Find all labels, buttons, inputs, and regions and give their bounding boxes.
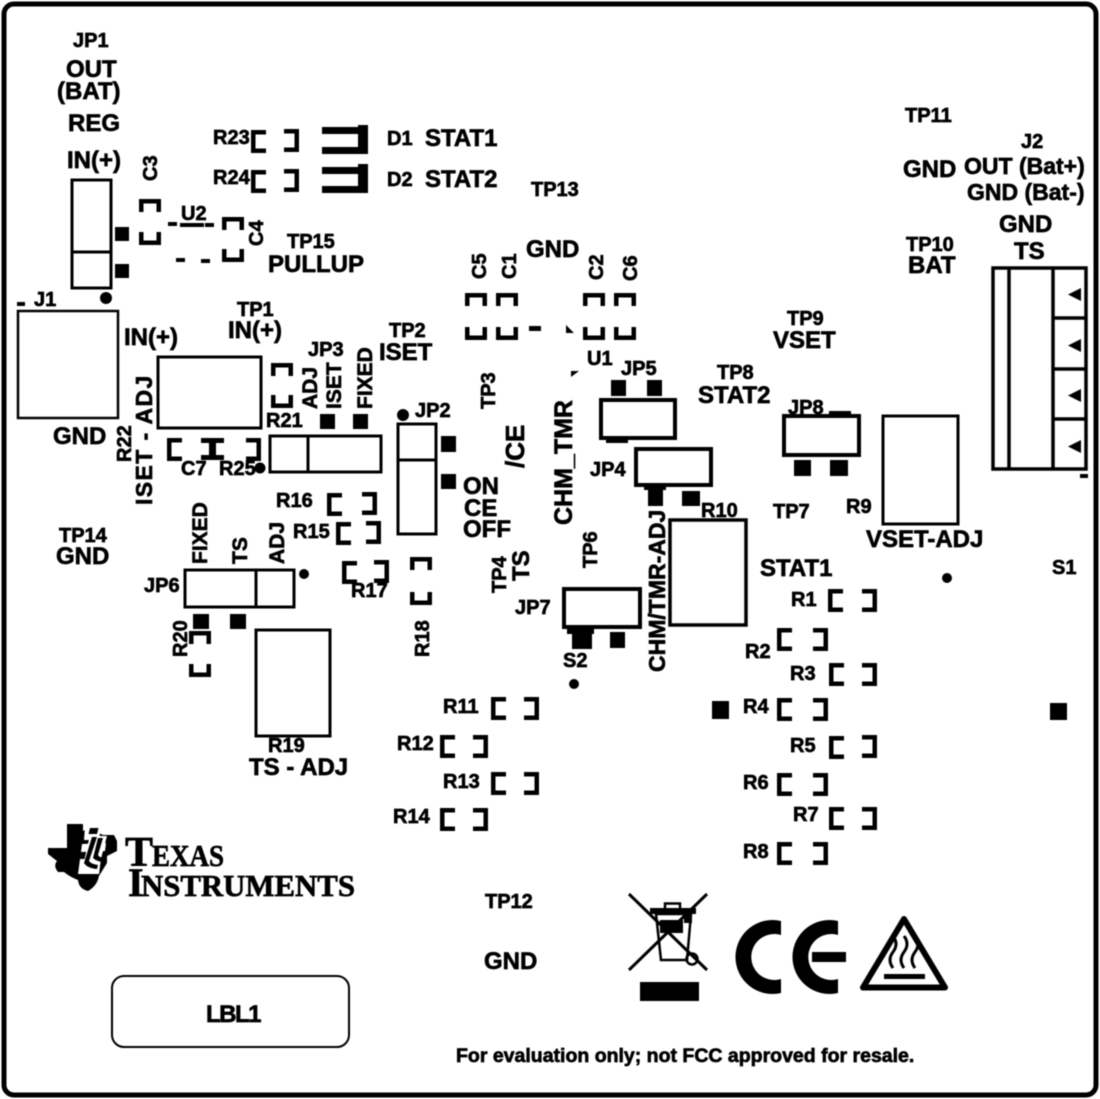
svg-text:STAT1: STAT1: [425, 125, 497, 152]
svg-text:R18: R18: [412, 620, 434, 657]
svg-text:U1: U1: [587, 348, 613, 370]
svg-text:S2: S2: [563, 650, 587, 672]
svg-text:JP4: JP4: [590, 459, 626, 481]
svg-text:C4: C4: [246, 220, 268, 246]
svg-text:ADJ: ADJ: [266, 522, 289, 564]
svg-text:GND: GND: [56, 543, 109, 570]
svg-text:C5: C5: [469, 253, 491, 279]
svg-text:JP7: JP7: [515, 597, 551, 619]
svg-text:R23: R23: [213, 127, 250, 149]
svg-text:R5: R5: [790, 735, 816, 757]
svg-text:R6: R6: [743, 772, 769, 794]
svg-text:R25: R25: [219, 458, 256, 480]
svg-text:R1: R1: [791, 589, 817, 611]
svg-text:TP11: TP11: [905, 105, 952, 127]
svg-text:U2: U2: [181, 203, 207, 225]
svg-text:PULLUP: PULLUP: [268, 251, 364, 278]
svg-text:CHM/TMR-ADJ: CHM/TMR-ADJ: [644, 510, 670, 672]
svg-text:TP13: TP13: [531, 179, 579, 201]
svg-text:C7: C7: [181, 458, 207, 480]
svg-text:OUT (Bat+): OUT (Bat+): [964, 153, 1085, 179]
svg-text:OFF: OFF: [463, 516, 511, 543]
svg-text:R9: R9: [846, 496, 872, 518]
svg-text:D1: D1: [387, 128, 413, 150]
svg-text:TP8: TP8: [717, 362, 754, 384]
svg-text:FIXED: FIXED: [354, 347, 377, 409]
svg-text:C1: C1: [499, 253, 521, 279]
svg-text:R11: R11: [443, 696, 479, 718]
svg-text:GND (Bat-): GND (Bat-): [967, 179, 1085, 205]
svg-text:STAT1: STAT1: [760, 555, 832, 582]
svg-text:CHM_TMR: CHM_TMR: [550, 400, 578, 525]
svg-text:R20: R20: [170, 620, 192, 657]
svg-text:TS - ADJ: TS - ADJ: [249, 754, 348, 781]
svg-text:/CE: /CE: [500, 425, 530, 468]
svg-text:ISET: ISET: [379, 339, 433, 366]
svg-text:TP3: TP3: [478, 372, 500, 409]
svg-text:R17: R17: [351, 580, 388, 602]
svg-text:R4: R4: [743, 696, 769, 718]
svg-text:D2: D2: [387, 169, 413, 191]
svg-text:S1: S1: [1052, 557, 1076, 579]
svg-text:C3: C3: [140, 155, 162, 181]
svg-text:TP15: TP15: [287, 231, 335, 253]
svg-text:IN(+): IN(+): [67, 147, 121, 174]
svg-text:J1: J1: [34, 289, 56, 311]
svg-text:VSET: VSET: [773, 327, 836, 354]
svg-text:TS: TS: [229, 537, 252, 564]
svg-text:GND: GND: [484, 948, 537, 975]
svg-text:For evaluation only; not FCC a: For evaluation only; not FCC approved fo…: [456, 1045, 914, 1067]
svg-text:J2: J2: [1021, 131, 1043, 153]
svg-text:TS: TS: [508, 550, 535, 581]
svg-text:BAT: BAT: [908, 252, 956, 279]
svg-text:STAT2: STAT2: [698, 382, 770, 409]
svg-text:R21: R21: [266, 410, 303, 432]
svg-text:R13: R13: [443, 771, 480, 793]
svg-text:R12: R12: [397, 733, 434, 755]
svg-text:JP6: JP6: [144, 575, 180, 597]
svg-text:JP3: JP3: [308, 339, 344, 361]
svg-text:IN(+): IN(+): [228, 317, 282, 344]
svg-text:TP6: TP6: [580, 531, 602, 568]
svg-text:REG: REG: [68, 110, 120, 137]
svg-text:R7: R7: [793, 804, 819, 826]
svg-text:C2: C2: [586, 254, 608, 280]
svg-text:ADJ: ADJ: [299, 367, 322, 409]
svg-text:C6: C6: [620, 255, 642, 281]
svg-text:TS: TS: [1014, 238, 1045, 265]
svg-text:JP2: JP2: [415, 400, 451, 422]
svg-text:ISET - ADJ: ISET - ADJ: [131, 374, 157, 505]
svg-text:GND: GND: [53, 423, 106, 450]
svg-text:ISET: ISET: [323, 362, 346, 409]
svg-text:R14: R14: [393, 806, 431, 828]
svg-text:TP7: TP7: [773, 501, 810, 523]
svg-text:R24: R24: [213, 167, 251, 189]
svg-text:STAT2: STAT2: [425, 166, 497, 193]
svg-text:VSET-ADJ: VSET-ADJ: [866, 526, 983, 553]
svg-text:R16: R16: [276, 490, 313, 512]
svg-text:JP1: JP1: [73, 30, 109, 52]
svg-text:FIXED: FIXED: [189, 502, 212, 564]
svg-text:NSTRUMENTS: NSTRUMENTS: [141, 868, 355, 903]
svg-text:LBL1: LBL1: [206, 1001, 261, 1028]
svg-text:R3: R3: [790, 663, 816, 685]
svg-text:GND: GND: [526, 236, 579, 263]
svg-text:GND: GND: [999, 211, 1052, 238]
svg-text:IN(+): IN(+): [124, 324, 178, 351]
svg-text:JP5: JP5: [621, 358, 657, 380]
svg-text:TP12: TP12: [485, 891, 533, 913]
svg-text:R2: R2: [745, 641, 771, 663]
svg-text:R8: R8: [743, 841, 769, 863]
svg-text:(BAT): (BAT): [57, 78, 121, 105]
svg-text:GND: GND: [903, 156, 956, 183]
svg-text:R15: R15: [293, 521, 330, 543]
